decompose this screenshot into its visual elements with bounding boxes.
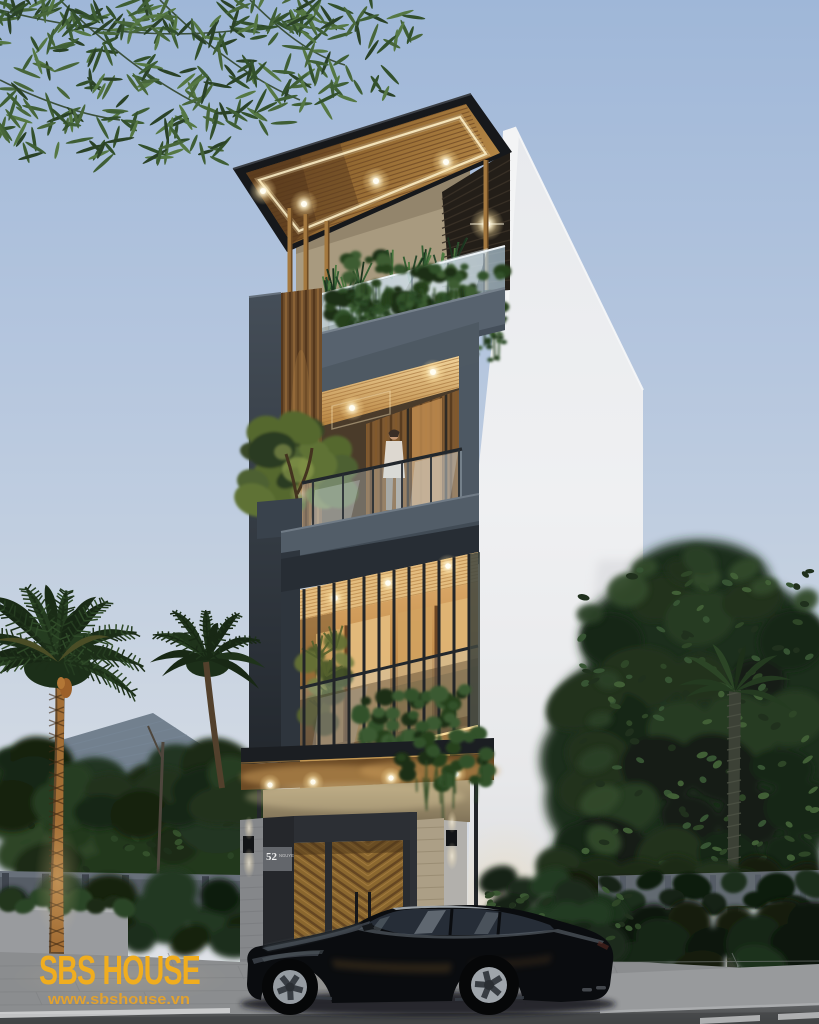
- svg-text:SBS HOUSE: SBS HOUSE: [39, 947, 200, 993]
- svg-text:52: 52: [266, 851, 278, 863]
- svg-text:www.sbshouse.vn: www.sbshouse.vn: [47, 991, 190, 1008]
